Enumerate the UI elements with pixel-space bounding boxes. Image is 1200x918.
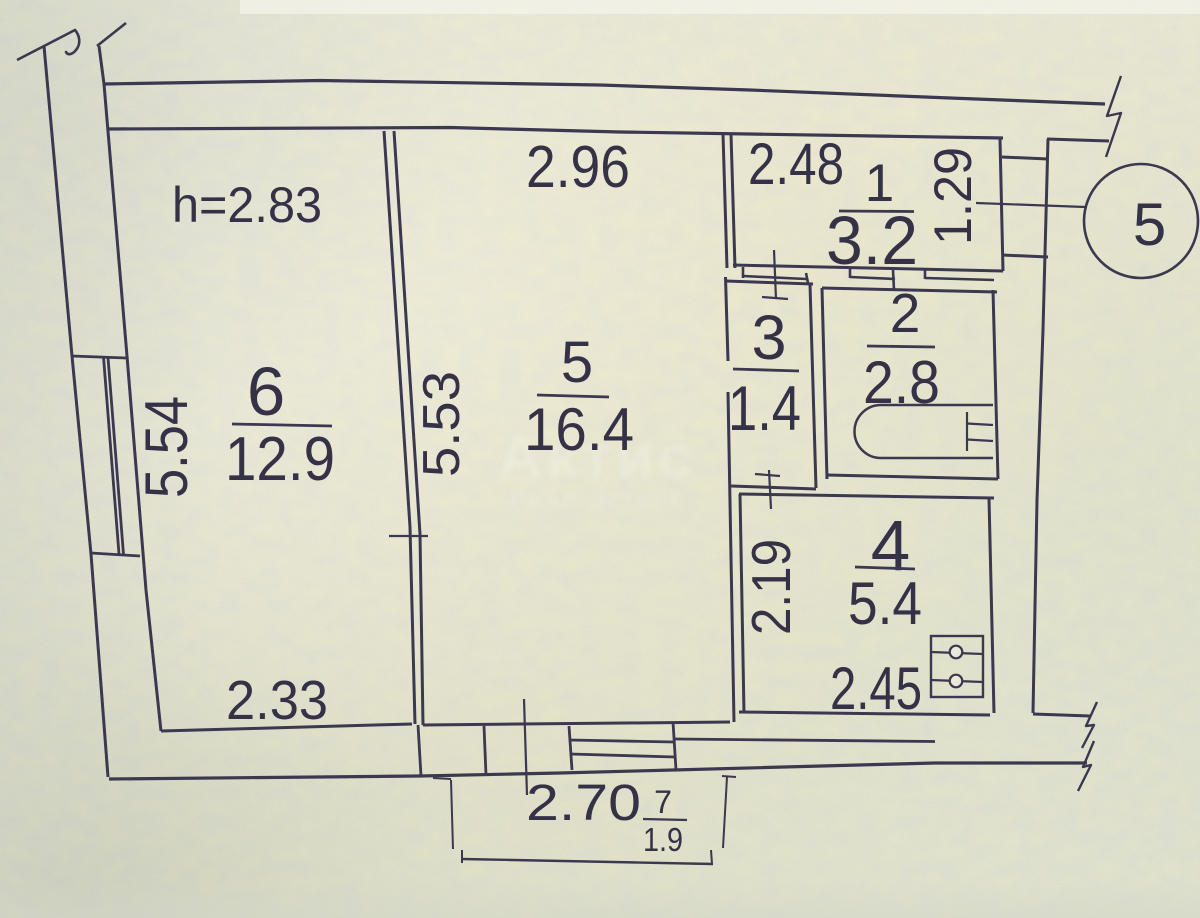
svg-text:Реал Эстейт: Реал Эстейт xyxy=(510,487,683,514)
svg-text:5.4: 5.4 xyxy=(848,570,922,637)
svg-text:h=2.83: h=2.83 xyxy=(172,177,322,233)
svg-text:16.4: 16.4 xyxy=(524,396,634,463)
svg-text:5.53: 5.53 xyxy=(413,371,471,477)
svg-text:5: 5 xyxy=(1133,191,1166,258)
svg-text:2.45: 2.45 xyxy=(830,655,922,722)
svg-text:2.96: 2.96 xyxy=(526,134,630,200)
svg-text:1.9: 1.9 xyxy=(643,821,683,858)
svg-text:2.33: 2.33 xyxy=(226,669,328,731)
svg-text:3: 3 xyxy=(751,303,786,373)
svg-text:5.54: 5.54 xyxy=(133,396,200,498)
svg-text:2.19: 2.19 xyxy=(740,539,802,635)
svg-text:1.29: 1.29 xyxy=(924,147,983,245)
svg-text:2.48: 2.48 xyxy=(748,132,844,197)
svg-text:2: 2 xyxy=(890,282,921,344)
svg-text:7: 7 xyxy=(654,784,672,820)
svg-text:2.70: 2.70 xyxy=(526,774,641,831)
svg-text:12.9: 12.9 xyxy=(225,425,335,494)
svg-text:1.4: 1.4 xyxy=(728,374,801,444)
svg-text:3.2: 3.2 xyxy=(826,202,918,279)
svg-text:6: 6 xyxy=(247,353,285,430)
svg-text:5: 5 xyxy=(561,330,593,395)
